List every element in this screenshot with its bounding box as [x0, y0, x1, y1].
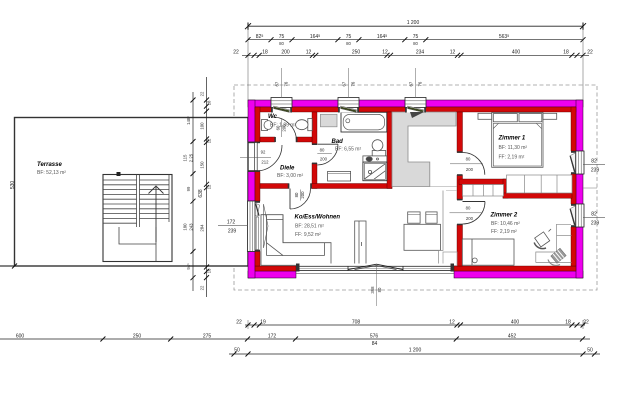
svg-text:12: 12 — [207, 138, 212, 143]
svg-text:530: 530 — [10, 181, 16, 190]
svg-text:Diele: Diele — [280, 166, 295, 172]
svg-text:239: 239 — [228, 229, 237, 235]
svg-text:FF: 2,19 m²: FF: 2,19 m² — [491, 229, 517, 235]
svg-text:BF: 11,30 m²: BF: 11,30 m² — [499, 145, 528, 151]
svg-text:18: 18 — [563, 49, 569, 55]
svg-text:Wc: Wc — [268, 114, 278, 120]
svg-text:172: 172 — [268, 333, 277, 339]
svg-text:22: 22 — [583, 319, 589, 325]
svg-text:576: 576 — [370, 333, 379, 339]
svg-text:600: 600 — [16, 333, 25, 339]
svg-text:82: 82 — [591, 159, 597, 165]
svg-text:80: 80 — [279, 41, 284, 46]
svg-text:22: 22 — [236, 319, 242, 325]
svg-text:BF: 6,55 m²: BF: 6,55 m² — [335, 146, 361, 152]
svg-text:2.25: 2.25 — [189, 153, 194, 162]
svg-text:638: 638 — [198, 189, 204, 198]
svg-text:22: 22 — [200, 91, 205, 96]
svg-text:80: 80 — [466, 206, 471, 211]
svg-text:234: 234 — [416, 49, 425, 55]
svg-text:172: 172 — [227, 220, 236, 226]
svg-text:BF: 3,00 m²: BF: 3,00 m² — [277, 173, 303, 179]
svg-text:BF: 28,51 m²: BF: 28,51 m² — [295, 224, 324, 230]
svg-text:80: 80 — [413, 41, 418, 46]
svg-text:239: 239 — [591, 168, 600, 174]
svg-text:12: 12 — [306, 49, 312, 55]
svg-text:100: 100 — [200, 122, 205, 130]
svg-text:239: 239 — [591, 221, 600, 227]
svg-text:BF: 10,46 m²: BF: 10,46 m² — [491, 221, 520, 227]
svg-text:12: 12 — [382, 49, 388, 55]
svg-text:75: 75 — [346, 34, 352, 40]
svg-text:284: 284 — [200, 224, 205, 232]
svg-text:Zimmer 1: Zimmer 1 — [498, 136, 526, 142]
svg-text:80: 80 — [320, 148, 325, 153]
svg-text:452: 452 — [508, 333, 517, 339]
svg-text:275: 275 — [203, 333, 212, 339]
svg-text:82: 82 — [591, 212, 597, 218]
svg-text:212: 212 — [261, 160, 269, 165]
svg-text:200: 200 — [466, 167, 474, 172]
svg-text:115: 115 — [183, 154, 188, 161]
svg-text:80: 80 — [294, 192, 299, 197]
svg-text:76: 76 — [418, 81, 423, 86]
svg-text:92: 92 — [261, 150, 266, 155]
svg-text:200: 200 — [300, 191, 305, 199]
svg-text:67: 67 — [342, 81, 347, 86]
svg-text:368: 368 — [370, 286, 375, 294]
svg-text:75: 75 — [413, 34, 419, 40]
svg-text:22: 22 — [587, 49, 593, 55]
svg-text:180: 180 — [183, 223, 188, 231]
svg-text:12: 12 — [207, 184, 212, 189]
svg-text:BF: 1,89 m²: BF: 1,89 m² — [270, 123, 296, 129]
svg-text:18: 18 — [207, 100, 212, 105]
svg-text:80: 80 — [466, 157, 471, 162]
svg-text:400: 400 — [512, 49, 521, 55]
svg-text:22: 22 — [200, 285, 205, 290]
svg-text:1 200: 1 200 — [409, 348, 422, 354]
svg-text:12: 12 — [450, 49, 456, 55]
svg-text:Zimmer 2: Zimmer 2 — [490, 213, 518, 219]
svg-text:50: 50 — [234, 348, 240, 354]
svg-text:243: 243 — [189, 223, 194, 231]
svg-text:150: 150 — [200, 161, 205, 169]
svg-text:200: 200 — [320, 157, 328, 162]
svg-text:67: 67 — [275, 81, 280, 86]
svg-text:Ko/Ess/Wohnen: Ko/Ess/Wohnen — [295, 215, 341, 221]
svg-text:200: 200 — [281, 49, 290, 55]
svg-text:16: 16 — [207, 268, 212, 273]
svg-text:250: 250 — [133, 333, 142, 339]
svg-text:99: 99 — [186, 186, 191, 191]
svg-text:22: 22 — [233, 49, 239, 55]
svg-text:Terrasse: Terrasse — [37, 162, 62, 168]
svg-text:708: 708 — [352, 319, 361, 325]
svg-text:FF: 9,52 m²: FF: 9,52 m² — [295, 232, 321, 238]
svg-text:75: 75 — [279, 34, 285, 40]
svg-text:12: 12 — [449, 319, 455, 325]
svg-text:18: 18 — [565, 319, 571, 325]
svg-text:76: 76 — [351, 81, 356, 86]
svg-text:67: 67 — [409, 81, 414, 86]
svg-text:80: 80 — [377, 287, 382, 292]
svg-text:84: 84 — [372, 341, 378, 347]
svg-text:FF: 2,19 m²: FF: 2,19 m² — [499, 155, 525, 161]
svg-text:Bad: Bad — [332, 139, 344, 145]
svg-text:19: 19 — [260, 319, 266, 325]
svg-text:200: 200 — [466, 216, 474, 221]
svg-text:18: 18 — [262, 49, 268, 55]
svg-text:400: 400 — [511, 319, 520, 325]
svg-text:BF: 52,13 m²: BF: 52,13 m² — [37, 170, 66, 176]
svg-text:50: 50 — [587, 348, 593, 354]
svg-text:1 200: 1 200 — [407, 20, 420, 26]
svg-text:250: 250 — [352, 49, 361, 55]
svg-text:76: 76 — [284, 81, 289, 86]
svg-text:80: 80 — [346, 41, 351, 46]
